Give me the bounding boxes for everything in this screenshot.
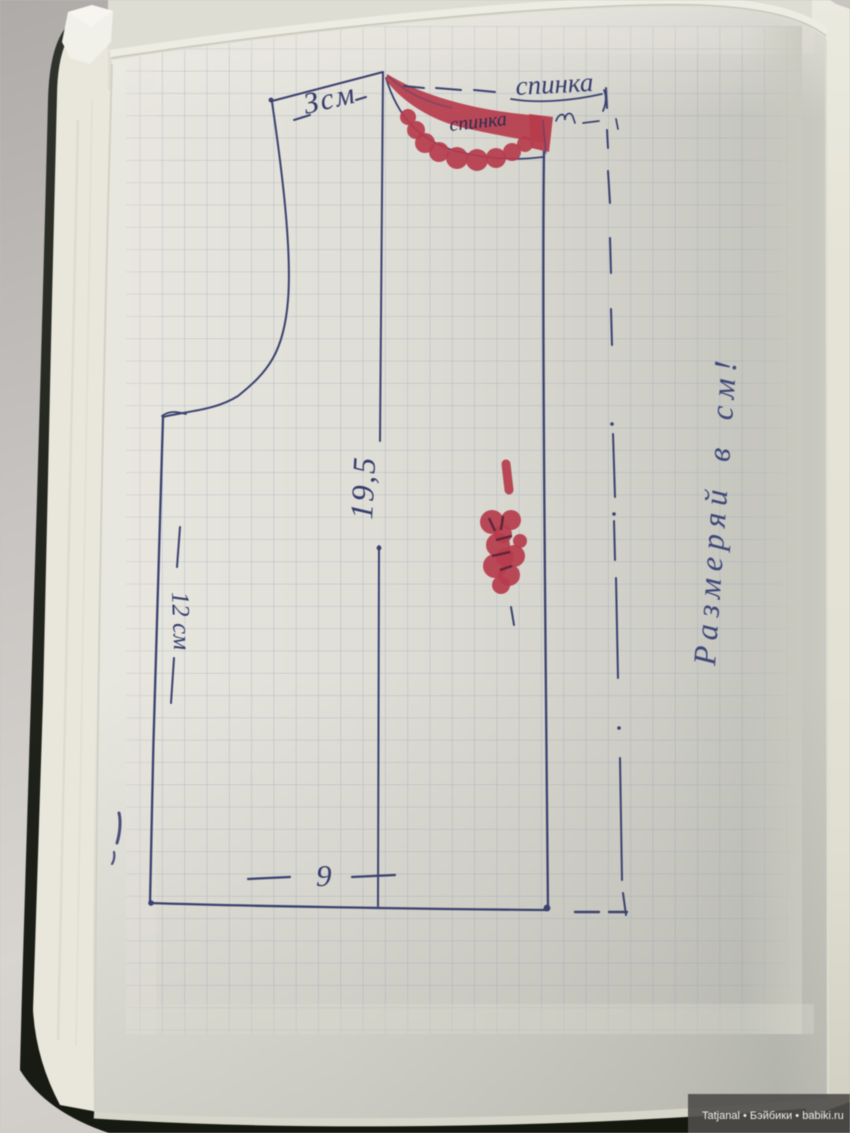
svg-text:9: 9 <box>316 858 332 893</box>
svg-text:спинка: спинка <box>515 67 594 101</box>
svg-text:12 см: 12 см <box>166 591 195 650</box>
svg-text:19,5: 19,5 <box>343 455 382 521</box>
svg-text:Tatjanal • Бэйбики • babiki.ru: Tatjanal • Бэйбики • babiki.ru <box>702 1110 844 1122</box>
